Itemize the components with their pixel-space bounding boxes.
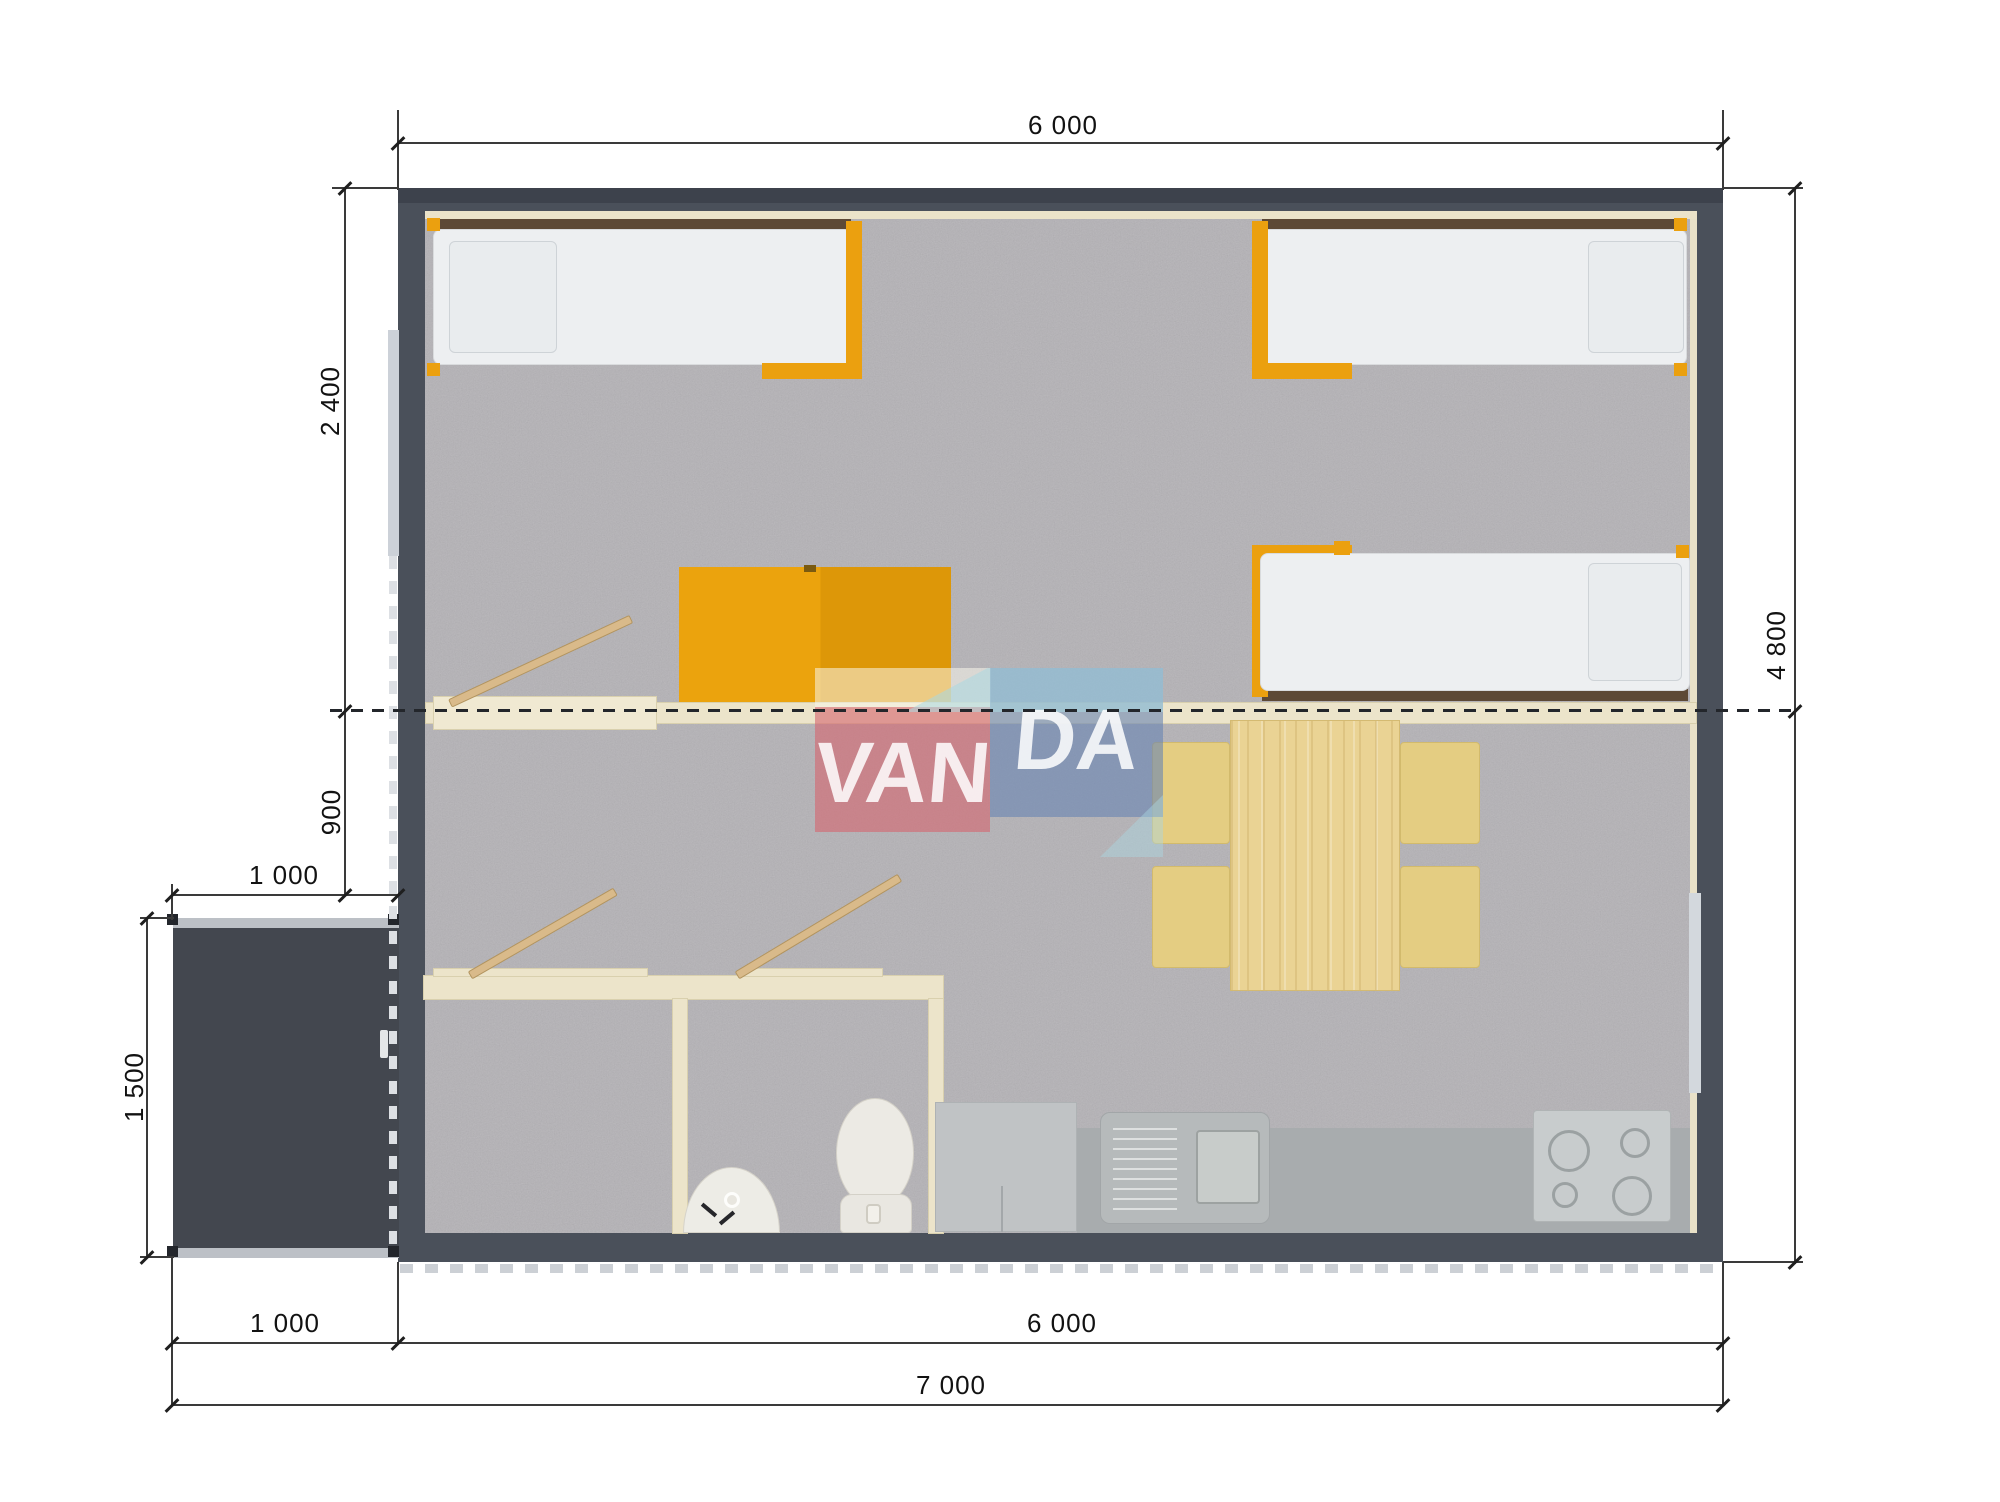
ext-bottom-x398 (397, 1262, 399, 1344)
dining-chair-3 (1400, 742, 1480, 844)
washbasin-faucet-knob (724, 1192, 740, 1208)
bed2-pillow (1588, 241, 1684, 353)
porch-bottom-step (173, 1248, 399, 1258)
dining-chair-2 (1152, 866, 1230, 968)
dim-line-bottom-2 (172, 1404, 1724, 1406)
dim-label-bedroom-depth: 2 400 (315, 341, 345, 461)
right-wall-window (1689, 893, 1701, 1093)
porch-top-step (173, 918, 399, 928)
ext-top-left (397, 110, 399, 190)
porch-deck (173, 928, 399, 1248)
top-wall-inner-face (425, 211, 1697, 219)
kitchen-sink-basin (1196, 1130, 1260, 1204)
logo-text-da: DA (985, 680, 1168, 800)
ext-bottom-x172 (171, 1258, 173, 1406)
bathroom-door-frame-right (743, 968, 883, 977)
toilet-flush-button (866, 1204, 881, 1224)
dim-label-body-width-bottom: 6 000 (1002, 1308, 1122, 1338)
dim-label-top-width: 6 000 (1003, 110, 1123, 140)
dim-label-hall-depth: 900 (316, 752, 346, 872)
dim-label-total-depth: 4 800 (1761, 585, 1791, 705)
bed1-corner-nub-bottom (427, 363, 440, 376)
toilet-lid (836, 1098, 914, 1208)
dim-label-porch-width-top: 1 000 (224, 860, 344, 890)
wardrobe-handle-notch (804, 565, 816, 572)
bed3-latch-nub (1334, 541, 1350, 555)
dim-line-top (398, 142, 1724, 144)
stove-burner-1 (1548, 1130, 1590, 1172)
kitchen-cabinet-left (935, 1102, 1077, 1232)
ext-porch-top-left (171, 884, 173, 920)
dim-label-porch-depth: 1 500 (119, 1027, 149, 1147)
dim-label-porch-width-bottom: 1 000 (225, 1308, 345, 1338)
bed1-corner-nub-top (427, 218, 440, 231)
bed1-pillow (449, 241, 557, 353)
left-wall-edge-dashes (389, 556, 397, 1248)
bed1-frame-foot (762, 363, 862, 379)
stove-burner-4 (1612, 1176, 1652, 1216)
left-wall-window (388, 330, 399, 556)
stove-burner-2 (1620, 1128, 1650, 1158)
floor-plan-stage: VAN DA 6 000 2 400 900 1 000 1 500 4 800… (0, 0, 2000, 1502)
bed2-corner-nub-top (1674, 218, 1687, 231)
bed2-frame-side (1252, 221, 1268, 379)
dim-line-porch-top (172, 894, 399, 896)
bed3-pillow (1588, 563, 1682, 681)
bed3-corner-nub (1676, 545, 1689, 558)
dim-line-bottom-1 (172, 1342, 1724, 1344)
bathroom-divider-wall-1 (672, 998, 688, 1234)
kitchen-cabinet-seam (1001, 1186, 1003, 1232)
bottom-wall-edge-dashes (400, 1264, 1722, 1273)
logo-text-van: VAN (810, 715, 995, 832)
dim-label-total-width: 7 000 (891, 1370, 1011, 1400)
kitchen-sink-drainer-ribs (1113, 1128, 1177, 1212)
bathroom-door-frame-left (433, 968, 648, 977)
ext-top-right (1722, 110, 1724, 190)
dining-chair-4 (1400, 866, 1480, 968)
ext-bottom-x1723 (1722, 1262, 1724, 1406)
dining-chair-1 (1152, 742, 1230, 844)
stove-burner-3 (1552, 1182, 1578, 1208)
divider-dashed-line (330, 709, 1795, 712)
bed2-frame-foot (1252, 363, 1352, 379)
bed2-corner-nub-bottom (1674, 363, 1687, 376)
top-wall-outer-band (398, 188, 1723, 203)
entry-door-handle (380, 1030, 388, 1058)
bathroom-front-wall (423, 975, 944, 1000)
dining-table (1230, 720, 1400, 991)
bed1-frame-side (846, 221, 862, 379)
divider-door-frame (433, 696, 657, 730)
dim-line-right (1794, 188, 1796, 1264)
